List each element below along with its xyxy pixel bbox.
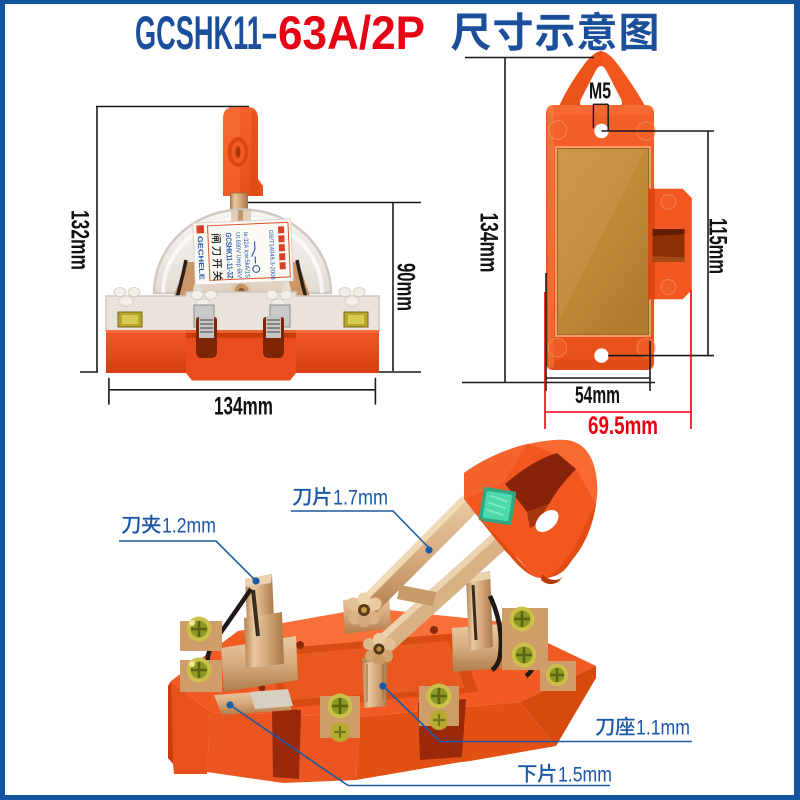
svg-text:1.5mm: 1.5mm (558, 764, 612, 787)
svg-text:1.1mm: 1.1mm (636, 717, 690, 740)
svg-text:69.5mm: 69.5mm (588, 412, 658, 440)
svg-text:134mm: 134mm (214, 393, 273, 421)
svg-text:1.7mm: 1.7mm (333, 487, 388, 510)
svg-text:134mm: 134mm (475, 213, 503, 273)
svg-text:GCSHK11–: GCSHK11– (135, 6, 277, 59)
svg-text:63A/2P: 63A/2P (278, 6, 425, 59)
svg-text:54mm: 54mm (575, 382, 620, 409)
svg-text:132mm: 132mm (66, 210, 94, 270)
svg-text:1.2mm: 1.2mm (162, 515, 216, 538)
svg-text:90mm: 90mm (392, 263, 420, 311)
svg-text:M5: M5 (589, 78, 611, 104)
svg-text:115mm: 115mm (704, 218, 732, 274)
